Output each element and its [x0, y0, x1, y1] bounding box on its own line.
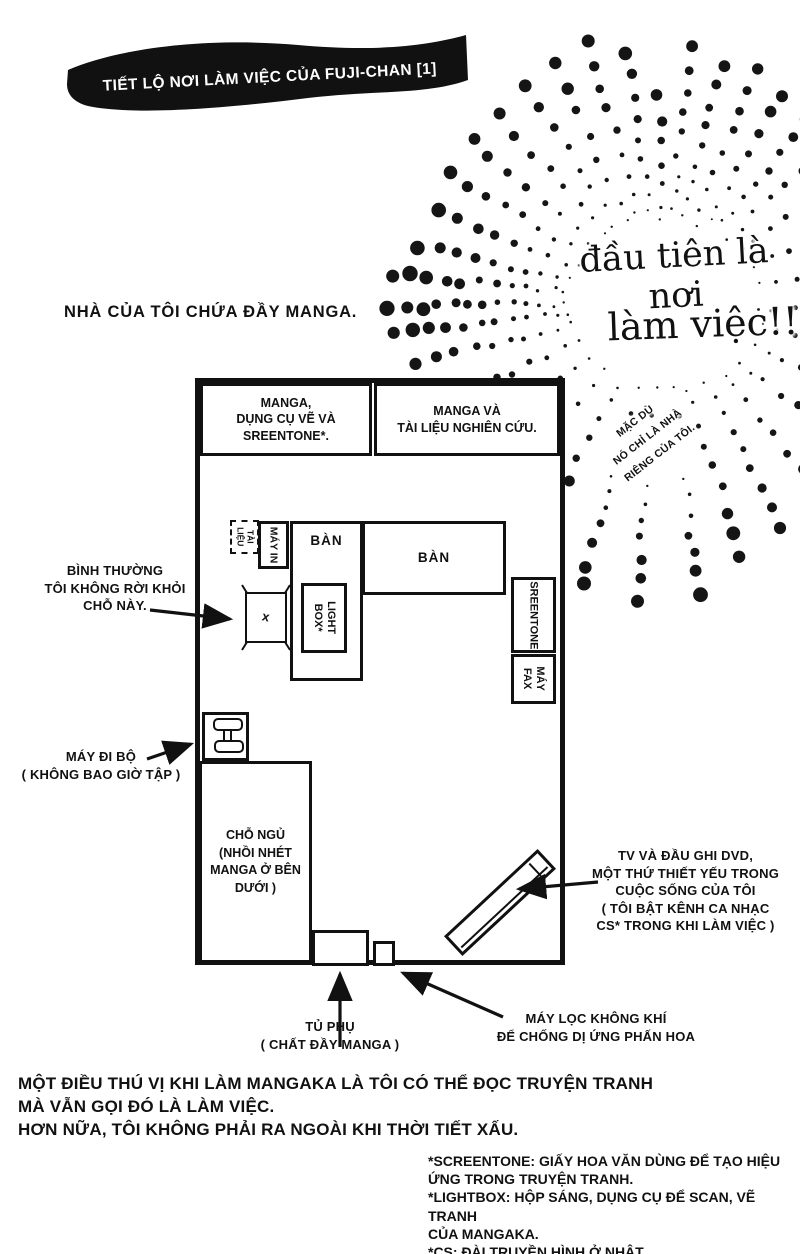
cabinet-box [312, 930, 369, 966]
desk-vertical-label: BÀN [310, 532, 342, 550]
tv-note: TV VÀ ĐẦU GHI DVD, MỘT THỨ THIẾT YẾU TRO… [578, 847, 793, 935]
purifier-note: MÁY LỌC KHÔNG KHÍ ĐỂ CHỐNG DỊ ỨNG PHẤN H… [485, 1010, 707, 1045]
chair-x-mark: x [261, 608, 272, 626]
shelf-research: MANGA VÀ TÀI LIỆU NGHIÊN CỨU. [374, 383, 560, 456]
tv-notch-line [529, 863, 542, 877]
treadmill-box [202, 712, 249, 761]
purifier-box [373, 941, 395, 966]
lightbox-box: LIGHT BOX* [301, 583, 347, 653]
treadmill-note: MÁY ĐI BỘ ( KHÔNG BAO GIỜ TẬP ) [20, 748, 182, 783]
shelf-manga-tools-label: MANGA, DỤNG CỤ VẼ VÀ SREENTONE*. [236, 395, 335, 444]
documents-label: TÀI LIỆU [235, 527, 255, 546]
screentone-label: SREENTONE [527, 581, 540, 649]
documents-box: TÀI LIỆU [230, 520, 259, 554]
title-banner: TIẾT LỘ NƠI LÀM VIỆC CỦA FUJI-CHAN [1] [58, 28, 473, 130]
manga-page: đầu tiên là nơi làm việc!! MẶC DÙ NÓ CHỈ… [0, 0, 800, 1254]
shelf-research-label: MANGA VÀ TÀI LIỆU NGHIÊN CỨU. [397, 403, 537, 436]
bed-box: CHỖ NGỦ (NHỒI NHÉT MANGA Ở BÊN DƯỚI ) [199, 761, 312, 963]
burst-headline-line2: làm việc!! [597, 298, 800, 349]
fax-label: MÁY FAX [521, 667, 546, 691]
desk-horizontal-label: BÀN [418, 549, 450, 567]
chair-note: BÌNH THƯỜNG TÔI KHÔNG RỜI KHỎI CHỖ NÀY. [30, 562, 200, 615]
cabinet-note: TỦ PHỤ ( CHẤT ĐẦY MANGA ) [245, 1018, 415, 1053]
screentone-box: SREENTONE [511, 577, 556, 653]
desk-horizontal: BÀN [362, 521, 506, 595]
bed-label: CHỖ NGỦ (NHỒI NHÉT MANGA Ở BÊN DƯỚI ) [210, 827, 301, 897]
treadmill-bottom-bar [214, 740, 244, 753]
printer-box: MÁY IN [258, 521, 289, 569]
printer-label: MÁY IN [267, 527, 279, 564]
lightbox-label: LIGHT BOX* [311, 602, 336, 635]
chair-box: x [245, 592, 287, 643]
fax-box: MÁY FAX [511, 654, 556, 704]
shelf-manga-tools: MANGA, DỤNG CỤ VẼ VÀ SREENTONE*. [200, 383, 372, 456]
